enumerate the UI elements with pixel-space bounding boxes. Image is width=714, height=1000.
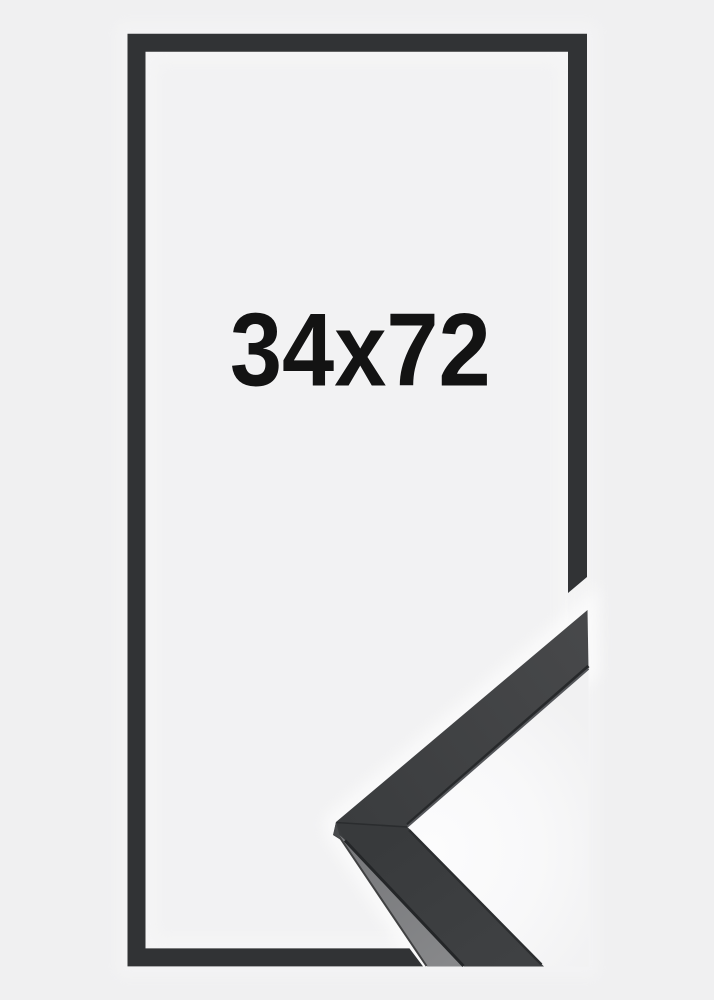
svg-text:34x72: 34x72 bbox=[230, 291, 491, 408]
